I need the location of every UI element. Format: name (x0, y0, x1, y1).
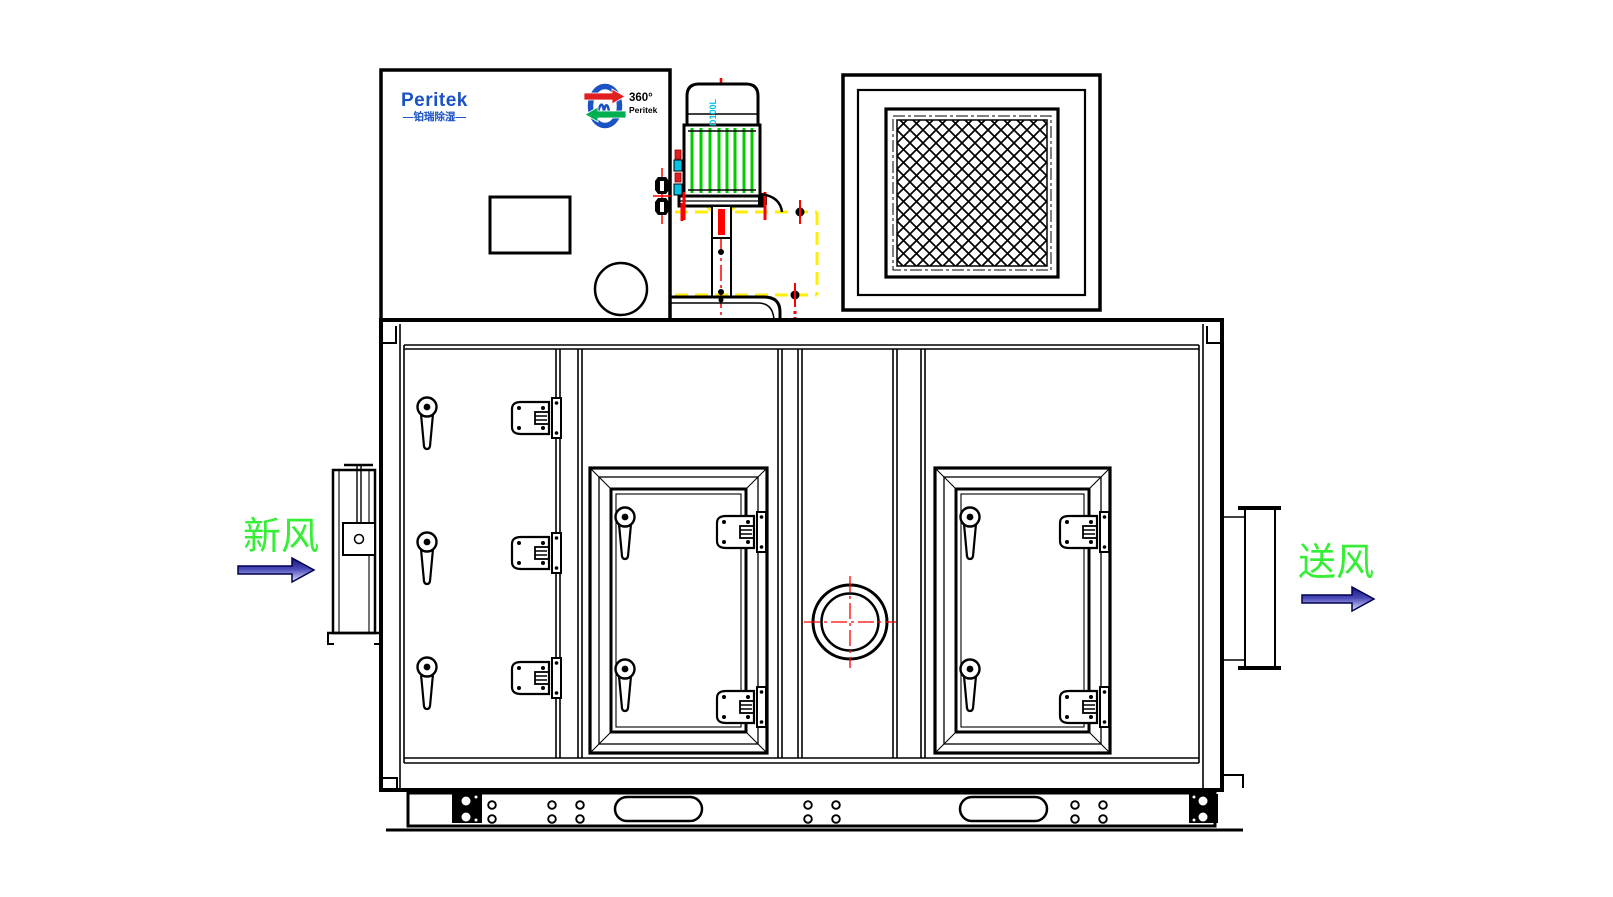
inspection-door-left (590, 468, 767, 753)
motor-body (684, 125, 760, 196)
motor-cap (687, 84, 758, 125)
supply-air-arrow-icon (1302, 587, 1374, 611)
motor-terminal-fittings (674, 150, 682, 195)
brand-logo-text: Peritek (401, 90, 468, 111)
lifting-lug-right (1189, 794, 1218, 823)
forklift-slot (960, 797, 1047, 821)
ahu-front-view-drawing: Peritek —铂瑞除湿— 360° Peritek (0, 0, 1613, 897)
supply-air-outlet (1222, 508, 1281, 668)
door-latch (512, 658, 561, 698)
brand-logo: Peritek —铂瑞除湿— (401, 90, 468, 123)
platform-bolt (719, 298, 724, 303)
rotor-logo-brand: Peritek (629, 105, 658, 115)
door-latch (512, 533, 561, 573)
forklift-slot (615, 797, 702, 821)
lifting-lug-left (452, 794, 482, 823)
mesh-grille (897, 120, 1047, 266)
cassette-bolt-top (796, 200, 805, 224)
door-latch (512, 398, 561, 438)
cassette-bolt-bottom (791, 283, 800, 320)
rotor-logo-degrees: 360° (629, 92, 653, 104)
corner-step-br (1222, 775, 1243, 788)
filter-grille-box (843, 75, 1100, 310)
motor-assembly: D100L (653, 78, 817, 334)
nameplate (490, 197, 570, 253)
damper-actuator-shaft (355, 535, 364, 544)
fresh-air-inlet (327, 465, 381, 644)
fresh-air-arrow-icon (238, 558, 314, 582)
cabinet-body (381, 320, 1243, 790)
door-latch (717, 512, 766, 552)
gauge-circle (595, 263, 647, 315)
supply-air-label: 送风 (1298, 542, 1374, 584)
motor-model-label: D100L (708, 98, 718, 126)
control-panel: Peritek —铂瑞除湿— 360° Peritek (381, 70, 670, 320)
door-latch (1060, 512, 1109, 552)
inlet-feet (328, 633, 380, 644)
base-frame (386, 793, 1243, 830)
column-bolt (718, 249, 724, 255)
fresh-air-label: 新风 (243, 516, 319, 558)
brand-logo-subtitle: —铂瑞除湿— (403, 110, 466, 123)
column-bolt (718, 289, 724, 295)
inspection-door-right (935, 468, 1110, 753)
door-latch (717, 687, 766, 727)
door-latch (1060, 687, 1109, 727)
shaft (718, 209, 725, 235)
rotor-cassette-dashed-outline (675, 212, 817, 295)
